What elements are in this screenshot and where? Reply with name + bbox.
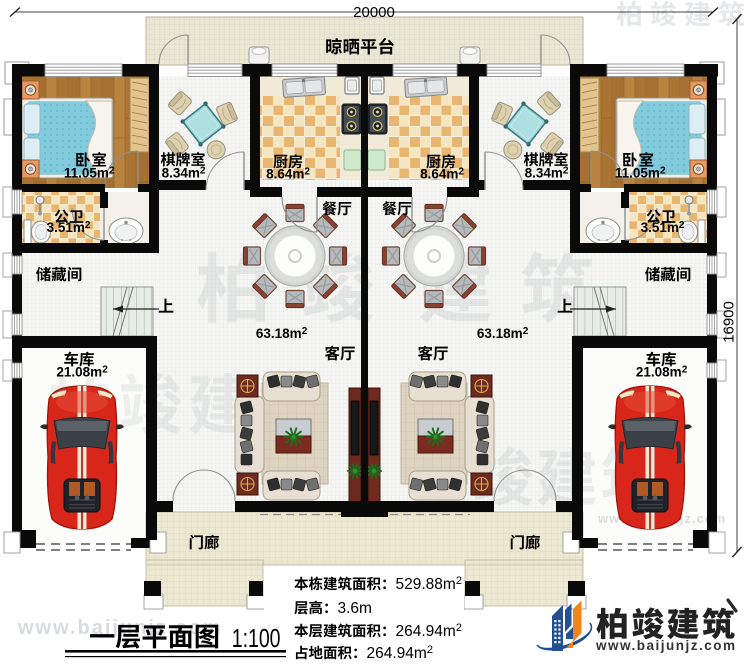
svg-text:21.08m2: 21.08m2 [636,365,688,380]
svg-text:16900: 16900 [721,301,738,343]
svg-text:8.34m2: 8.34m2 [162,166,206,181]
svg-text:8.64m2: 8.64m2 [420,167,464,182]
svg-text:3.6m: 3.6m [338,600,372,617]
svg-text:8.64m2: 8.64m2 [266,167,310,182]
svg-text:63.18m2: 63.18m2 [477,326,529,341]
svg-text:63.18m2: 63.18m2 [256,326,308,341]
svg-text:3.51m2: 3.51m2 [47,220,91,235]
svg-text:1:100: 1:100 [232,623,281,652]
svg-text:20000: 20000 [353,4,395,21]
svg-text:3.51m2: 3.51m2 [641,220,685,235]
svg-text:8.34m2: 8.34m2 [525,166,569,181]
svg-text:264.94m2: 264.94m2 [367,644,433,662]
svg-text:264.94m2: 264.94m2 [396,622,462,640]
svg-text:21.08m2: 21.08m2 [56,365,108,380]
svg-text:www.baijunjz.com: www.baijunjz.com [595,638,737,653]
svg-text:529.88m2: 529.88m2 [396,575,462,593]
svg-text:11.05m2: 11.05m2 [615,166,666,181]
svg-text:11.05m2: 11.05m2 [64,166,115,181]
